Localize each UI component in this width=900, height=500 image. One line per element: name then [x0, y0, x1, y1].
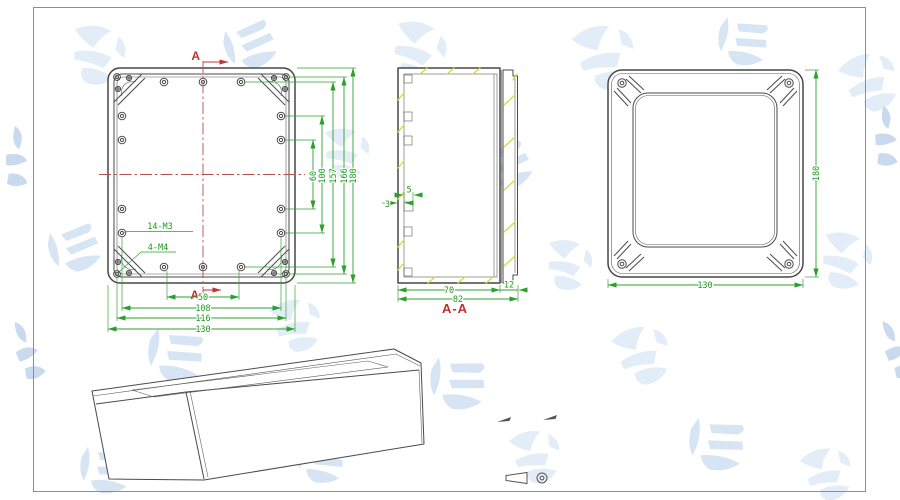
section-marker-top: A: [191, 49, 200, 63]
dim-lid-12: 12: [504, 281, 514, 291]
dim-width-108: 108: [195, 304, 210, 314]
arrowhead-symbol-1: [497, 417, 511, 422]
drawing-svg: A A 60 100 157 166 180: [0, 0, 900, 500]
dim-back-height-180: 180: [812, 166, 822, 181]
isometric-view: [92, 349, 424, 480]
section-view-title: A-A: [442, 301, 468, 316]
dim-width-50: 50: [198, 293, 208, 303]
dim-boss-5: 5: [406, 186, 411, 196]
dim-back-width-130: 130: [697, 281, 712, 291]
dim-width-116: 116: [195, 314, 210, 324]
back-view: 180 130: [608, 70, 822, 291]
arrowhead-symbol-2: [543, 415, 557, 420]
section-view: 5 3 70 12 82 A-A: [382, 68, 527, 316]
dim-hole-span-157: 157: [329, 168, 339, 183]
cone-plug-symbol: [506, 473, 527, 484]
cad-drawing-page: A A 60 100 157 166 180: [0, 0, 900, 500]
label-14-M3: 14-M3: [147, 222, 173, 232]
front-view: A A 60 100 157 166 180: [99, 49, 359, 335]
dim-height-180: 180: [349, 168, 359, 183]
label-4-M4: 4-M4: [148, 243, 168, 253]
dim-hole-span-100: 100: [318, 168, 328, 183]
dim-wall-3: 3: [385, 200, 390, 210]
dim-width-130: 130: [195, 325, 210, 335]
